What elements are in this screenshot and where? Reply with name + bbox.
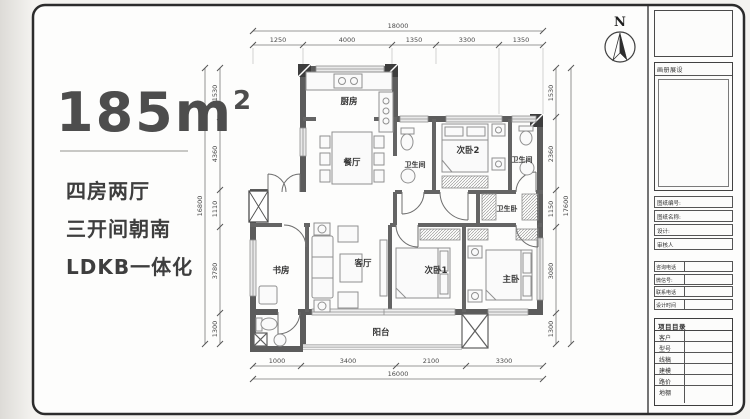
contact-date-value bbox=[685, 300, 732, 309]
floorplan-sheet: 18000 1250 4000 1350 3300 1350 16800 153… bbox=[0, 0, 750, 419]
project-directory-header: 项目目录 bbox=[655, 319, 732, 331]
selling-point-3: LDKB一体化 bbox=[66, 248, 193, 286]
dim-top-seg3: 3300 bbox=[459, 36, 476, 44]
directory-row: 线稿 bbox=[655, 353, 732, 364]
dim-right-seg0: 1530 bbox=[547, 85, 555, 102]
directory-value-0 bbox=[685, 331, 732, 342]
area-value: 185m2 bbox=[56, 86, 251, 140]
contact-row: 微信号: bbox=[654, 274, 733, 285]
directory-label-0: 客户 bbox=[655, 331, 685, 342]
dim-top-total: 18000 bbox=[388, 22, 409, 30]
dim-left-seg4: 1300 bbox=[211, 321, 219, 338]
dim-bottom-seg1: 3400 bbox=[340, 357, 357, 365]
directory-value-1 bbox=[685, 342, 732, 353]
dim-right-seg3: 3080 bbox=[547, 263, 555, 280]
dim-right-total: 17600 bbox=[562, 196, 570, 217]
title-block-contacts: 咨询电话 微信号: 联系电话 设计时间 bbox=[654, 261, 733, 311]
directory-label-2: 线稿 bbox=[655, 353, 685, 364]
room-label-bath1: 卫生间 bbox=[405, 160, 426, 169]
room-label-bath2: 卫生间 bbox=[512, 155, 533, 164]
contact-date-label: 设计时间 bbox=[655, 300, 685, 309]
room-label-master: 主卧 bbox=[502, 274, 520, 285]
directory-row: 路价 bbox=[655, 375, 732, 386]
contact-phone-value bbox=[685, 262, 732, 271]
dim-top-seg0: 1250 bbox=[270, 36, 287, 44]
directory-value-4 bbox=[685, 375, 732, 386]
directory-value-3 bbox=[685, 364, 732, 375]
room-label-living: 客厅 bbox=[353, 258, 372, 269]
directory-label-5: 地棚 bbox=[655, 386, 685, 403]
selling-points: 四房两厅 三开间朝南 LDKB一体化 bbox=[66, 172, 193, 286]
directory-label-4: 路价 bbox=[655, 375, 685, 386]
directory-label-3: 建模 bbox=[655, 364, 685, 375]
dim-bottom-seg0: 1000 bbox=[269, 357, 286, 365]
title-block: 画册展设 图纸编号: 图纸名称: 设计: 审核人 咨询电话 微信号: 联系电话 … bbox=[652, 0, 738, 419]
dim-bottom-seg3: 3300 bbox=[496, 357, 513, 365]
selling-point-1: 四房两厅 bbox=[66, 172, 193, 210]
directory-value-5 bbox=[685, 386, 732, 403]
dim-left-seg1: 4360 bbox=[211, 146, 219, 163]
directory-row: 型号 bbox=[655, 342, 732, 353]
area-exponent: 2 bbox=[233, 86, 251, 116]
field-reviewer: 审核人 bbox=[654, 238, 733, 250]
gallery-frame bbox=[658, 79, 729, 187]
field-drawing-no: 图纸编号: bbox=[654, 196, 733, 208]
dim-bottom-seg2: 2100 bbox=[423, 357, 440, 365]
dim-top-seg2: 1350 bbox=[406, 36, 423, 44]
contact-row: 联系电话 bbox=[654, 286, 733, 297]
dim-right-seg2: 1150 bbox=[547, 201, 555, 218]
contact-row: 咨询电话 bbox=[654, 261, 733, 272]
directory-value-2 bbox=[685, 353, 732, 364]
directory-row: 地棚 bbox=[655, 386, 732, 403]
contact-wechat-value bbox=[685, 275, 732, 284]
dim-left-seg2: 1110 bbox=[211, 201, 219, 218]
room-label-bedroom1: 次卧1 bbox=[425, 265, 448, 276]
room-label-closet: 卫生卧 bbox=[497, 204, 518, 213]
dim-top-seg4: 1350 bbox=[513, 36, 530, 44]
room-label-study: 书房 bbox=[272, 265, 289, 276]
contact-tel-value bbox=[685, 287, 732, 296]
contact-row: 设计时间 bbox=[654, 299, 733, 310]
dim-top-seg1: 4000 bbox=[339, 36, 356, 44]
gallery-header: 画册展设 bbox=[655, 63, 732, 76]
directory-label-1: 型号 bbox=[655, 342, 685, 353]
dim-right-seg4: 1300 bbox=[547, 321, 555, 338]
project-directory: 项目目录 客户 型号 线稿 建模 路价 地棚 bbox=[654, 318, 733, 406]
title-block-fields: 图纸编号: 图纸名称: 设计: 审核人 bbox=[654, 196, 733, 252]
room-label-dining: 餐厅 bbox=[342, 157, 361, 168]
area-number: 185m bbox=[56, 81, 233, 144]
field-designer: 设计: bbox=[654, 224, 733, 236]
title-block-logo-box bbox=[654, 10, 733, 57]
field-drawing-name: 图纸名称: bbox=[654, 210, 733, 222]
room-label-kitchen: 厨房 bbox=[340, 96, 357, 107]
directory-row: 客户 bbox=[655, 331, 732, 342]
directory-row: 建模 bbox=[655, 364, 732, 375]
north-label: N bbox=[614, 15, 626, 30]
dim-bottom-total: 16000 bbox=[388, 370, 409, 378]
dim-left-seg3: 3780 bbox=[211, 263, 219, 280]
room-label-balcony: 阳台 bbox=[372, 327, 390, 338]
contact-wechat-label: 微信号: bbox=[655, 275, 685, 284]
title-block-gallery-box: 画册展设 bbox=[654, 62, 733, 191]
summary-divider bbox=[60, 150, 188, 152]
contact-tel-label: 联系电话 bbox=[655, 287, 685, 296]
dim-right-seg1: 2360 bbox=[547, 146, 555, 163]
dim-left-total: 16800 bbox=[196, 196, 204, 217]
contact-phone-label: 咨询电话 bbox=[655, 262, 685, 271]
room-label-bedroom2: 次卧2 bbox=[457, 145, 480, 156]
selling-point-2: 三开间朝南 bbox=[66, 210, 193, 248]
